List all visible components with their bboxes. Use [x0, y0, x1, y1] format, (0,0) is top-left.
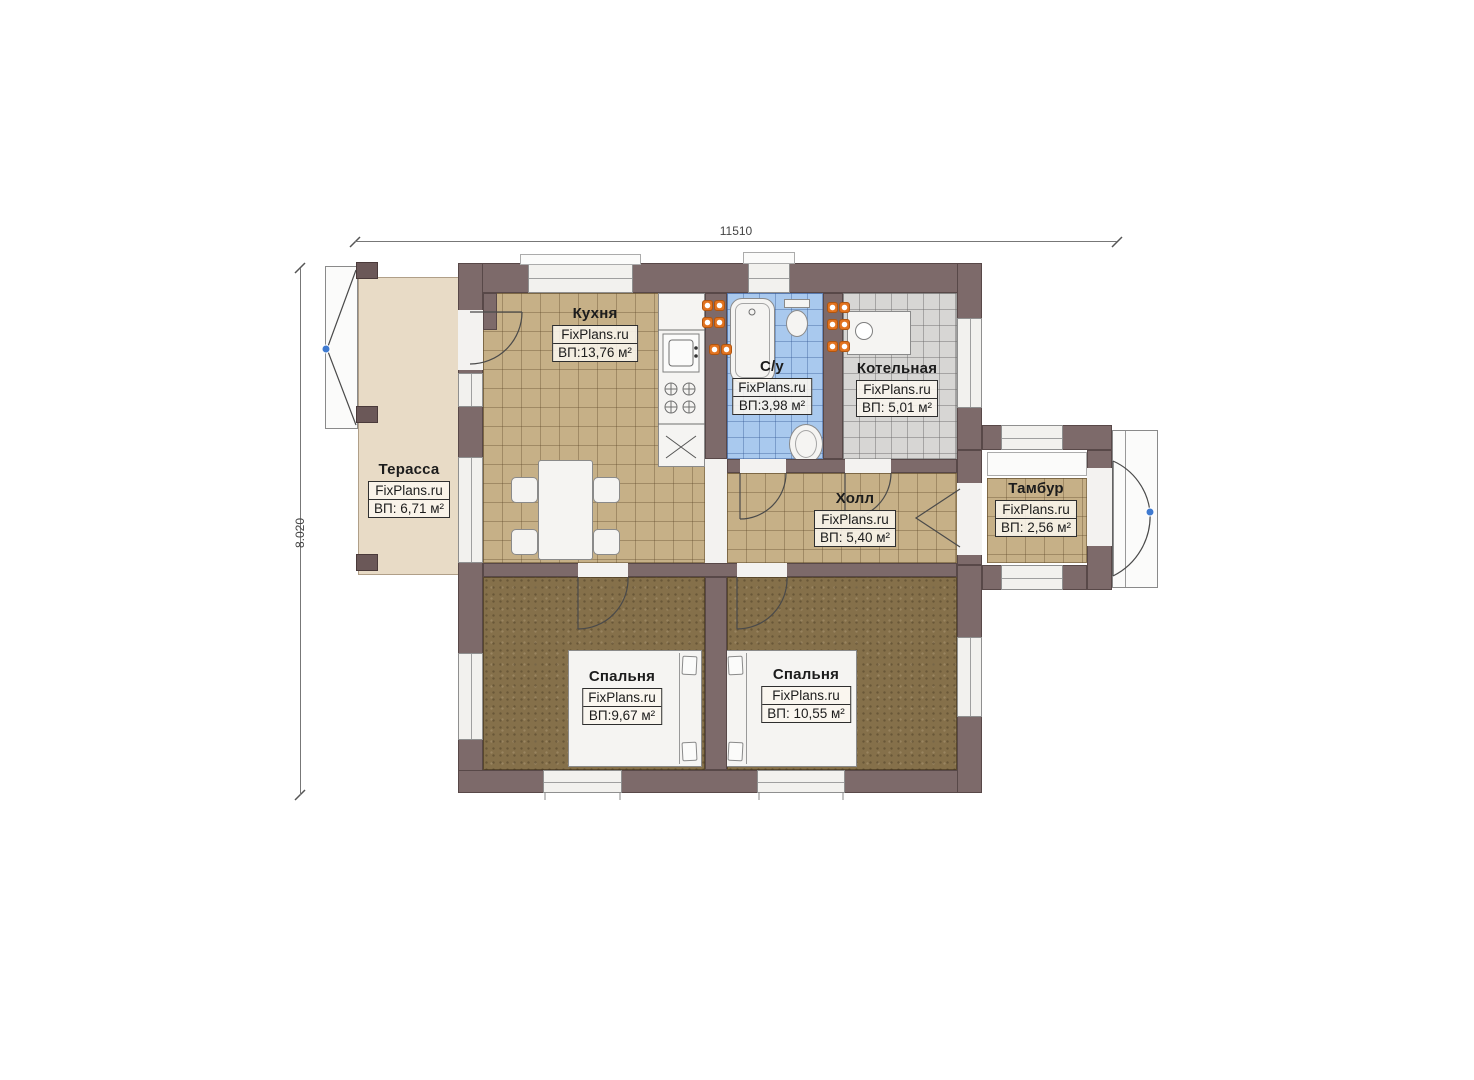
- chair: [593, 529, 620, 555]
- porch-step-line: [1125, 431, 1126, 587]
- radiator: [702, 300, 713, 311]
- room-area: ВП: 6,71 м²: [369, 499, 449, 517]
- room-brand: FixPlans.ru: [733, 379, 811, 396]
- room-label-box: FixPlans.ru ВП:3,98 м²: [732, 378, 812, 415]
- toilet-bowl: [786, 310, 808, 337]
- room-brand: FixPlans.ru: [553, 326, 637, 343]
- radiator: [714, 300, 725, 311]
- chair: [511, 477, 538, 503]
- room-area: ВП:13,76 м²: [553, 343, 637, 361]
- window-sill: [520, 254, 641, 265]
- pillow: [682, 656, 698, 676]
- door-opening: [578, 563, 628, 577]
- room-name: Кухня: [552, 305, 638, 323]
- room-label-box: FixPlans.ru ВП: 2,56 м²: [995, 500, 1077, 537]
- wall-segment: [483, 563, 957, 577]
- washbasin: [789, 424, 823, 464]
- terrace-glazing: [325, 266, 358, 429]
- window: [748, 263, 790, 293]
- window: [458, 457, 483, 563]
- wall-segment: [705, 577, 727, 770]
- dimension-height-label: 8.020: [293, 518, 307, 548]
- room-name: Тамбур: [995, 480, 1077, 498]
- radiator: [839, 302, 850, 313]
- room-brand: FixPlans.ru: [369, 482, 449, 499]
- room-label-box: FixPlans.ru ВП: 10,55 м²: [761, 686, 851, 723]
- chair: [511, 529, 538, 555]
- room-label-bathroom: С/у FixPlans.ru ВП:3,98 м²: [732, 358, 812, 415]
- radiator: [714, 317, 725, 328]
- room-label-kitchen: Кухня FixPlans.ru ВП:13,76 м²: [552, 305, 638, 362]
- room-area: ВП: 5,40 м²: [815, 528, 895, 546]
- bed-headboard-line: [746, 653, 747, 764]
- wall-pier: [483, 293, 497, 330]
- room-label-hall: Холл FixPlans.ru ВП: 5,40 м²: [814, 490, 896, 547]
- bed-headboard-line: [679, 653, 680, 764]
- radiator: [827, 302, 838, 313]
- terrace-floor: [358, 277, 460, 575]
- window: [458, 373, 483, 407]
- dining-table: [538, 460, 593, 560]
- room-brand: FixPlans.ru: [996, 501, 1076, 518]
- door-opening: [957, 483, 982, 555]
- radiator: [827, 319, 838, 330]
- room-label-box: FixPlans.ru ВП:13,76 м²: [552, 325, 638, 362]
- window: [1001, 565, 1063, 590]
- window: [957, 637, 982, 717]
- window: [458, 653, 483, 740]
- wall-segment: [458, 770, 982, 793]
- room-area: ВП: 10,55 м²: [762, 704, 850, 722]
- kitchen-counter: [658, 293, 705, 467]
- pillow: [728, 742, 744, 762]
- room-name: Терасса: [368, 461, 450, 479]
- radiator: [827, 341, 838, 352]
- room-label-terrace: Терасса FixPlans.ru ВП: 6,71 м²: [368, 461, 450, 518]
- room-name: Котельная: [856, 360, 938, 378]
- room-area: ВП:9,67 м²: [583, 706, 661, 724]
- door-opening: [458, 310, 483, 370]
- radiator: [709, 344, 720, 355]
- vestibule-closet: [987, 452, 1087, 476]
- radiator: [839, 341, 850, 352]
- wall-segment: [823, 293, 843, 459]
- room-name: Холл: [814, 490, 896, 508]
- toilet-tank: [784, 299, 810, 308]
- window: [757, 770, 845, 793]
- boiler-unit: [847, 311, 911, 355]
- room-label-box: FixPlans.ru ВП:9,67 м²: [582, 688, 662, 725]
- door-opening: [845, 459, 891, 473]
- room-brand: FixPlans.ru: [762, 687, 850, 704]
- room-brand: FixPlans.ru: [857, 381, 937, 398]
- entrance-porch: [1112, 430, 1158, 588]
- room-brand: FixPlans.ru: [583, 689, 661, 706]
- room-area: ВП: 5,01 м²: [857, 398, 937, 416]
- radiator: [839, 319, 850, 330]
- chair: [593, 477, 620, 503]
- room-area: ВП:3,98 м²: [733, 396, 811, 414]
- door-opening: [740, 459, 786, 473]
- window: [543, 770, 622, 793]
- pillow: [728, 656, 744, 676]
- pillow: [682, 742, 698, 762]
- door-opening: [737, 563, 787, 577]
- room-area: ВП: 2,56 м²: [996, 518, 1076, 536]
- room-name: Спальня: [582, 668, 662, 686]
- room-label-box: FixPlans.ru ВП: 5,01 м²: [856, 380, 938, 417]
- room-name: Спальня: [761, 666, 851, 684]
- dimension-line-top: [355, 241, 1117, 242]
- window: [528, 263, 633, 293]
- room-label-bedroom-2: Спальня FixPlans.ru ВП: 10,55 м²: [761, 666, 851, 723]
- terrace-post: [356, 406, 378, 423]
- floor-plan-canvas: Терасса FixPlans.ru ВП: 6,71 м² Кухня Fi…: [0, 0, 1474, 1080]
- window-sill: [743, 252, 795, 264]
- window: [957, 318, 982, 408]
- room-brand: FixPlans.ru: [815, 511, 895, 528]
- room-label-bedroom-1: Спальня FixPlans.ru ВП:9,67 м²: [582, 668, 662, 725]
- window: [1001, 425, 1063, 450]
- radiator: [702, 317, 713, 328]
- radiator: [721, 344, 732, 355]
- terrace-post: [356, 262, 378, 279]
- room-label-boiler: Котельная FixPlans.ru ВП: 5,01 м²: [856, 360, 938, 417]
- passage-opening: [705, 459, 727, 563]
- room-label-box: FixPlans.ru ВП: 5,40 м²: [814, 510, 896, 547]
- window-sill-ticks: [545, 793, 843, 800]
- door-opening: [1087, 468, 1112, 546]
- room-name: С/у: [732, 358, 812, 376]
- terrace-post: [356, 554, 378, 571]
- dimension-width-label: 11510: [355, 224, 1117, 238]
- room-label-box: FixPlans.ru ВП: 6,71 м²: [368, 481, 450, 518]
- room-label-vestibule: Тамбур FixPlans.ru ВП: 2,56 м²: [995, 480, 1077, 537]
